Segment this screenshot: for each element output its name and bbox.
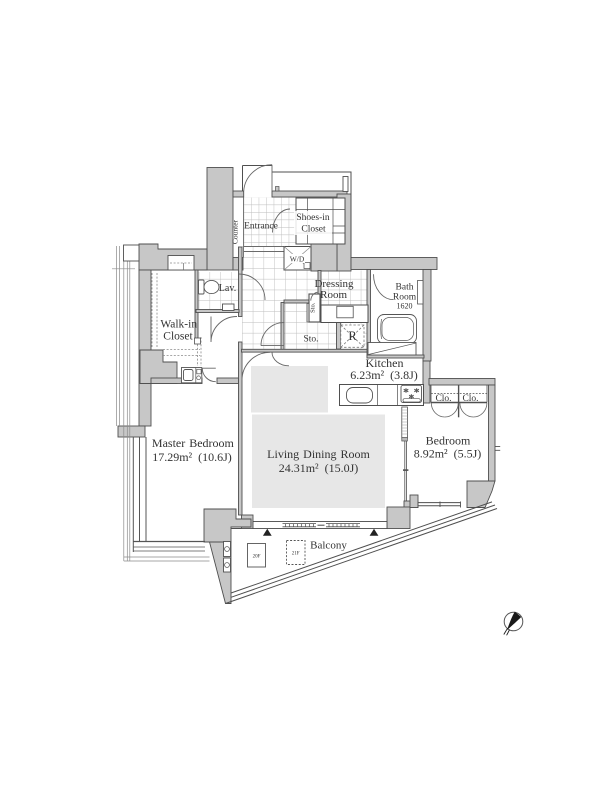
svg-text:8.92m² (5.5J): 8.92m² (5.5J): [414, 447, 482, 461]
svg-text:Counter: Counter: [231, 219, 240, 244]
svg-text:24.31m² (15.0J): 24.31m² (15.0J): [279, 461, 359, 475]
svg-text:Walk-in: Walk-in: [160, 319, 197, 331]
svg-text:Sto.: Sto.: [310, 302, 317, 313]
svg-text:Shoes-in: Shoes-in: [296, 213, 330, 223]
svg-text:6.23m² (3.8J): 6.23m² (3.8J): [350, 368, 418, 382]
svg-text:Bath: Bath: [396, 283, 414, 293]
svg-text:Clo.: Clo.: [435, 394, 451, 404]
svg-text:R: R: [348, 329, 357, 343]
svg-text:Dressing: Dressing: [314, 278, 354, 290]
svg-text:20F: 20F: [253, 555, 261, 560]
svg-text:1620: 1620: [397, 302, 413, 311]
svg-text:Clo.: Clo.: [462, 394, 478, 404]
svg-text:Sto.: Sto.: [303, 335, 318, 345]
svg-text:Entrance: Entrance: [244, 222, 278, 232]
svg-text:Living Dining Room: Living Dining Room: [267, 447, 370, 461]
svg-text:Bedroom: Bedroom: [426, 433, 471, 447]
svg-text:W/D: W/D: [290, 255, 305, 264]
svg-text:Balcony: Balcony: [310, 540, 347, 552]
svg-text:Lav.: Lav.: [219, 283, 236, 294]
svg-text:21F: 21F: [292, 552, 300, 557]
svg-text:Closet: Closet: [163, 331, 193, 343]
svg-text:Room: Room: [320, 289, 347, 301]
svg-text:17.29m² (10.6J): 17.29m² (10.6J): [152, 450, 232, 464]
svg-text:Closet: Closet: [301, 225, 326, 235]
svg-text:Master Bedroom: Master Bedroom: [152, 436, 235, 450]
